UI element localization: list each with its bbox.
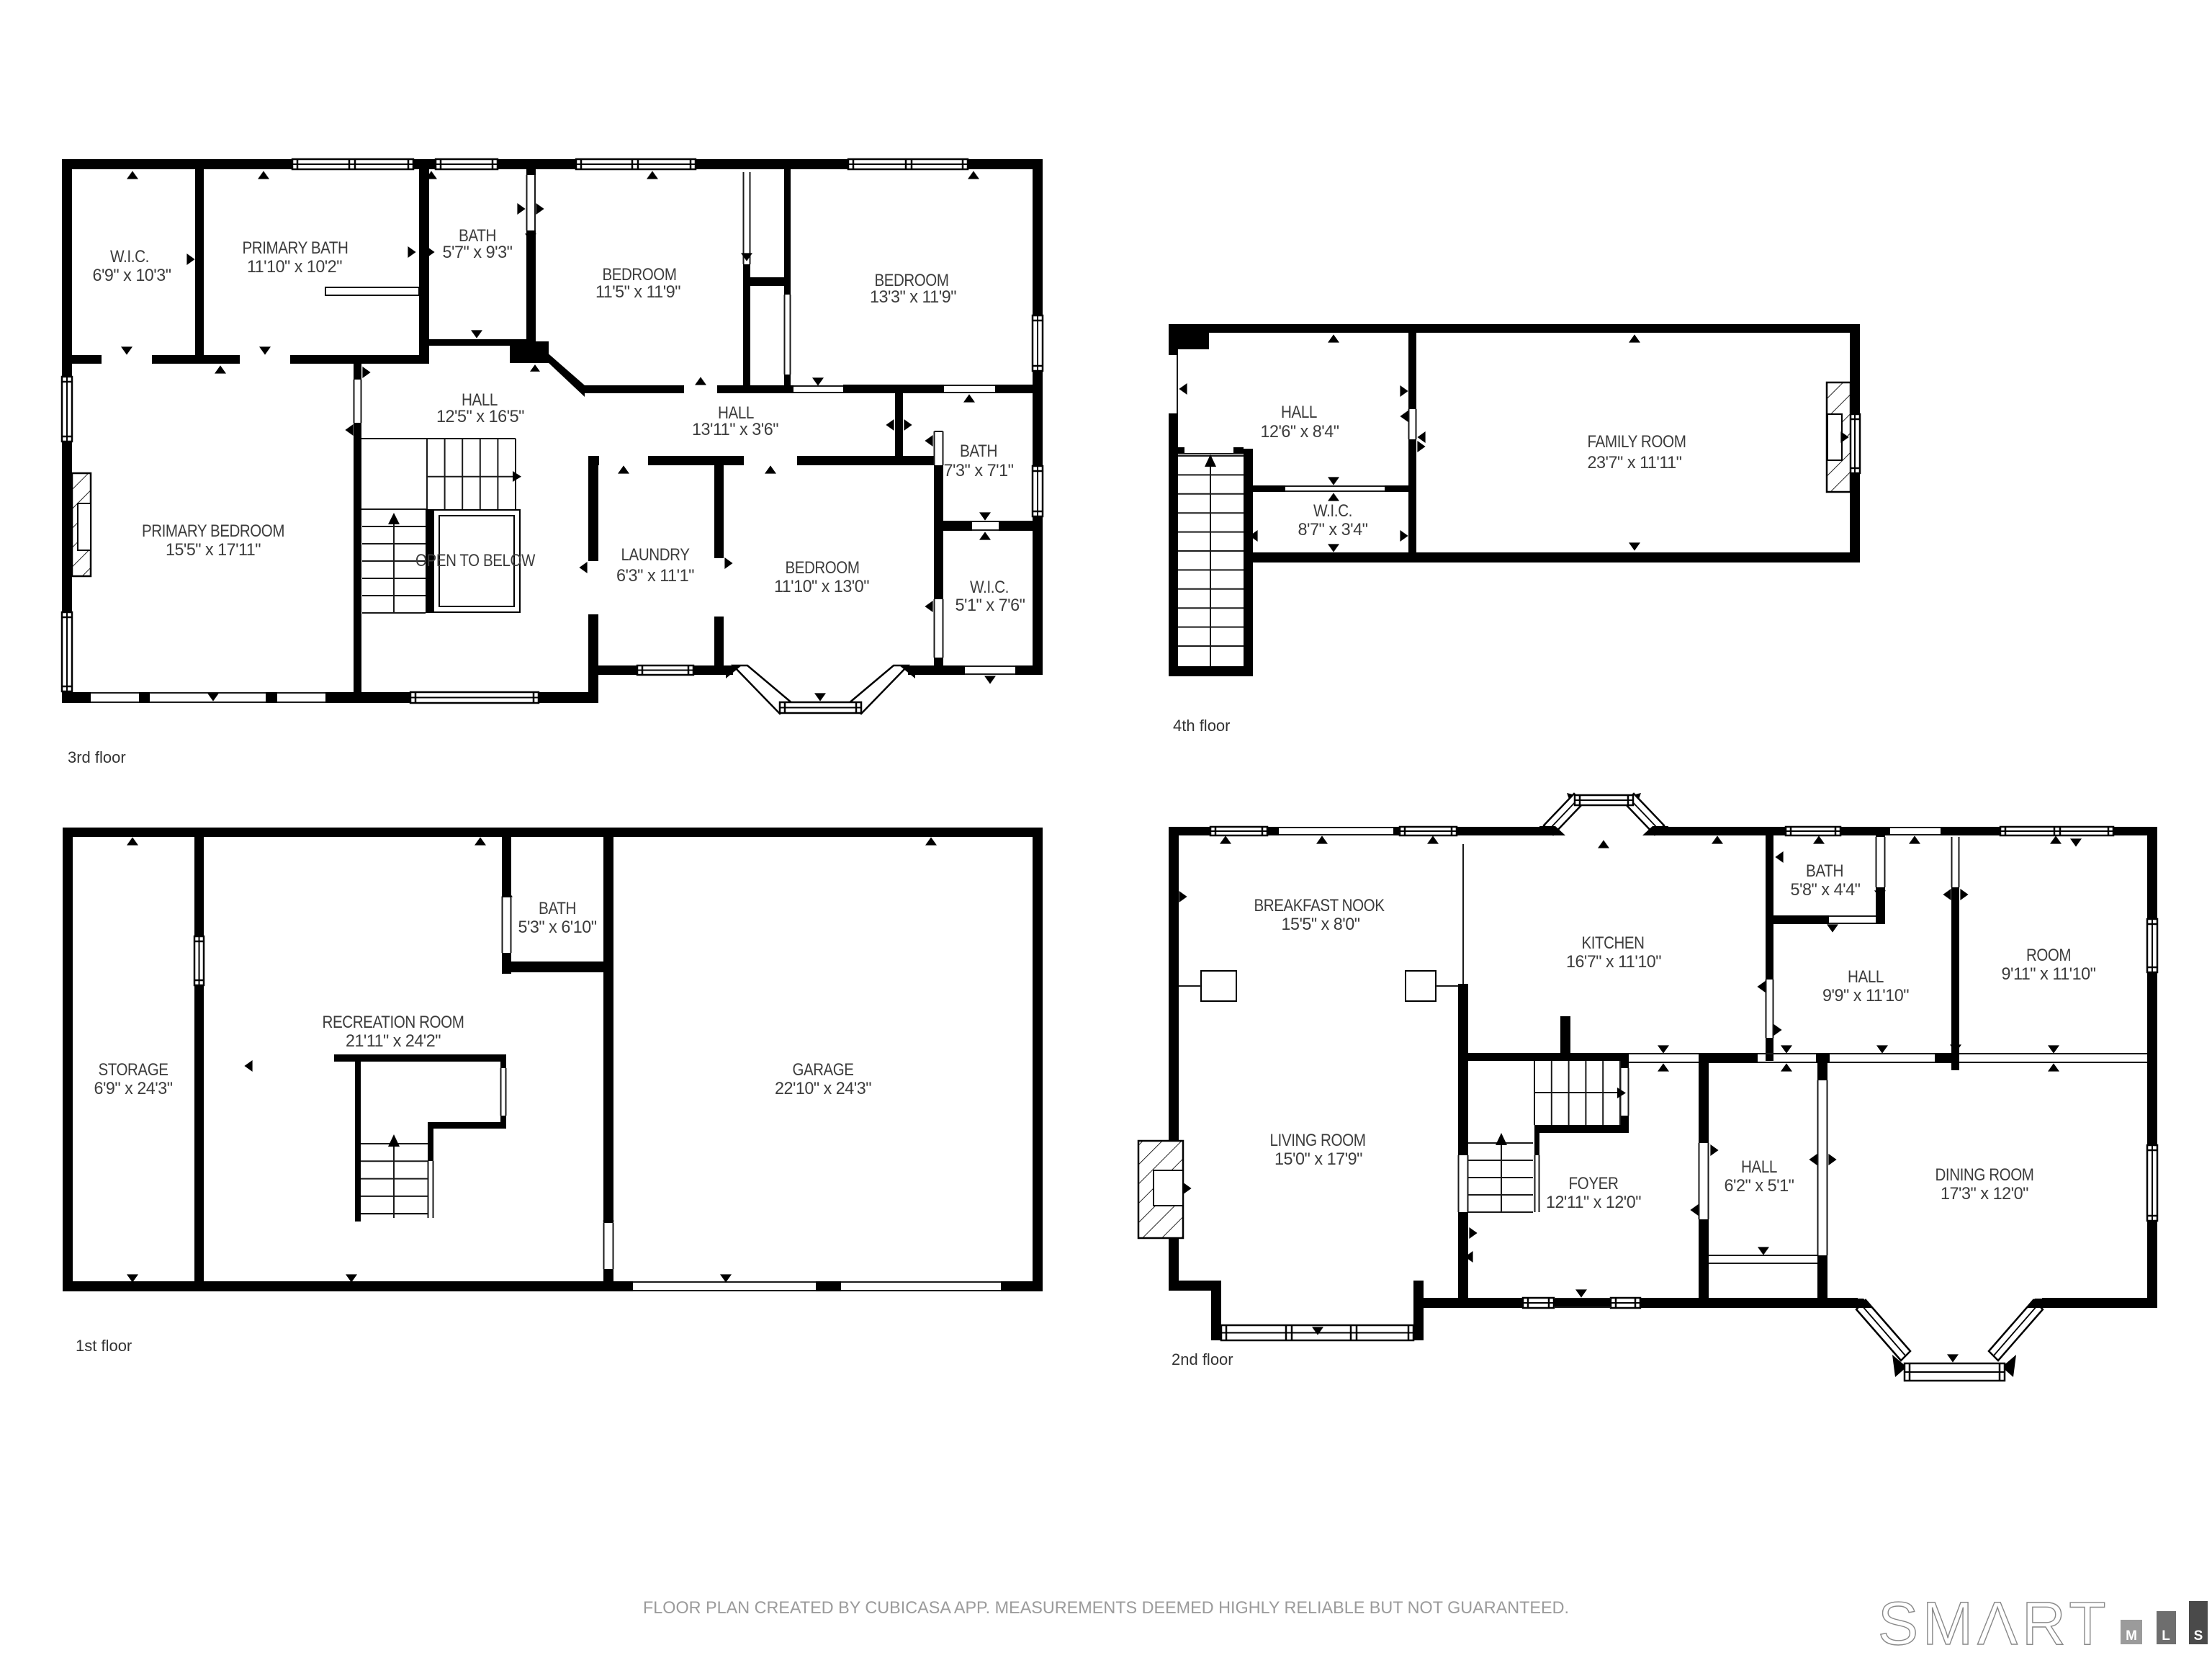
svg-text:6'2" x 5'1": 6'2" x 5'1" [1725,1176,1794,1196]
svg-text:BREAKFAST NOOK: BREAKFAST NOOK [1254,896,1385,915]
svg-text:BATH: BATH [539,899,576,918]
svg-text:1st floor: 1st floor [76,1337,132,1355]
svg-text:5'8" x 4'4": 5'8" x 4'4" [1791,880,1861,900]
svg-text:6'9" x 24'3": 6'9" x 24'3" [94,1079,173,1098]
svg-text:16'7" x 11'10": 16'7" x 11'10" [1566,952,1661,972]
svg-text:OPEN TO BELOW: OPEN TO BELOW [415,551,536,570]
svg-text:6'3" x 11'1": 6'3" x 11'1" [616,566,694,586]
svg-text:BATH: BATH [960,441,997,461]
svg-text:L: L [2162,1628,2170,1644]
svg-text:9'9" x 11'10": 9'9" x 11'10" [1822,986,1909,1005]
svg-text:RECREATION ROOM: RECREATION ROOM [323,1013,464,1032]
svg-text:15'5" x 8'0": 15'5" x 8'0" [1282,915,1360,934]
svg-text:GARAGE: GARAGE [793,1060,854,1080]
svg-text:8'7" x 3'4": 8'7" x 3'4" [1298,520,1368,539]
svg-text:2nd floor: 2nd floor [1172,1350,1233,1368]
svg-text:DINING ROOM: DINING ROOM [1935,1165,2034,1185]
svg-text:4th floor: 4th floor [1173,717,1231,735]
svg-text:S: S [2194,1628,2203,1644]
svg-text:17'3" x 12'0": 17'3" x 12'0" [1941,1184,2028,1203]
svg-text:22'10" x 24'3": 22'10" x 24'3" [775,1079,871,1098]
svg-text:BATH: BATH [1806,861,1843,881]
svg-text:15'0" x 17'9": 15'0" x 17'9" [1274,1149,1362,1169]
svg-text:9'11" x 11'10": 9'11" x 11'10" [2002,964,2096,984]
svg-text:5'3" x 6'10": 5'3" x 6'10" [518,918,597,937]
svg-text:ROOM: ROOM [2026,946,2071,965]
svg-text:12'11" x 12'0": 12'11" x 12'0" [1546,1193,1641,1212]
svg-text:PRIMARY BEDROOM: PRIMARY BEDROOM [142,521,284,541]
svg-text:FAMILY ROOM: FAMILY ROOM [1588,432,1686,452]
svg-text:23'7" x 11'11": 23'7" x 11'11" [1588,453,1682,472]
svg-text:15'5" x 17'11": 15'5" x 17'11" [166,540,261,560]
svg-text:LIVING ROOM: LIVING ROOM [1270,1131,1366,1150]
svg-text:FLOOR PLAN CREATED BY CUBICASA: FLOOR PLAN CREATED BY CUBICASA APP. MEAS… [643,1598,1569,1618]
svg-text:5'7" x 9'3": 5'7" x 9'3" [443,243,513,262]
svg-text:11'10" x 10'2": 11'10" x 10'2" [247,257,342,277]
svg-text:KITCHEN: KITCHEN [1582,933,1645,953]
svg-text:HALL: HALL [1741,1157,1777,1177]
svg-text:6'9" x 10'3": 6'9" x 10'3" [93,266,171,285]
svg-text:W.I.C.: W.I.C. [110,247,149,266]
svg-text:LAUNDRY: LAUNDRY [621,545,690,565]
svg-text:BEDROOM: BEDROOM [786,558,860,578]
svg-text:11'10" x 13'0": 11'10" x 13'0" [774,577,869,596]
svg-text:W.I.C.: W.I.C. [970,578,1009,597]
svg-text:11'5" x 11'9": 11'5" x 11'9" [595,282,680,302]
svg-text:SMΛRT: SMΛRT [1878,1590,2110,1657]
svg-text:5'1" x 7'6": 5'1" x 7'6" [956,596,1025,615]
svg-text:PRIMARY BATH: PRIMARY BATH [243,238,349,258]
svg-text:3rd floor: 3rd floor [68,748,126,766]
svg-text:13'3" x 11'9": 13'3" x 11'9" [870,287,956,307]
svg-text:BEDROOM: BEDROOM [603,265,677,284]
svg-text:STORAGE: STORAGE [99,1060,168,1080]
svg-text:21'11" x 24'2": 21'11" x 24'2" [346,1031,441,1051]
svg-text:HALL: HALL [1281,403,1317,422]
svg-text:13'11" x 3'6": 13'11" x 3'6" [692,420,778,439]
svg-text:7'3" x 7'1": 7'3" x 7'1" [944,461,1014,480]
svg-text:12'6" x 8'4": 12'6" x 8'4" [1261,422,1339,441]
svg-text:12'5" x 16'5": 12'5" x 16'5" [436,407,524,426]
svg-text:W.I.C.: W.I.C. [1313,501,1352,521]
svg-text:FOYER: FOYER [1569,1174,1619,1193]
svg-text:HALL: HALL [1848,967,1884,987]
svg-text:M: M [2126,1628,2137,1644]
